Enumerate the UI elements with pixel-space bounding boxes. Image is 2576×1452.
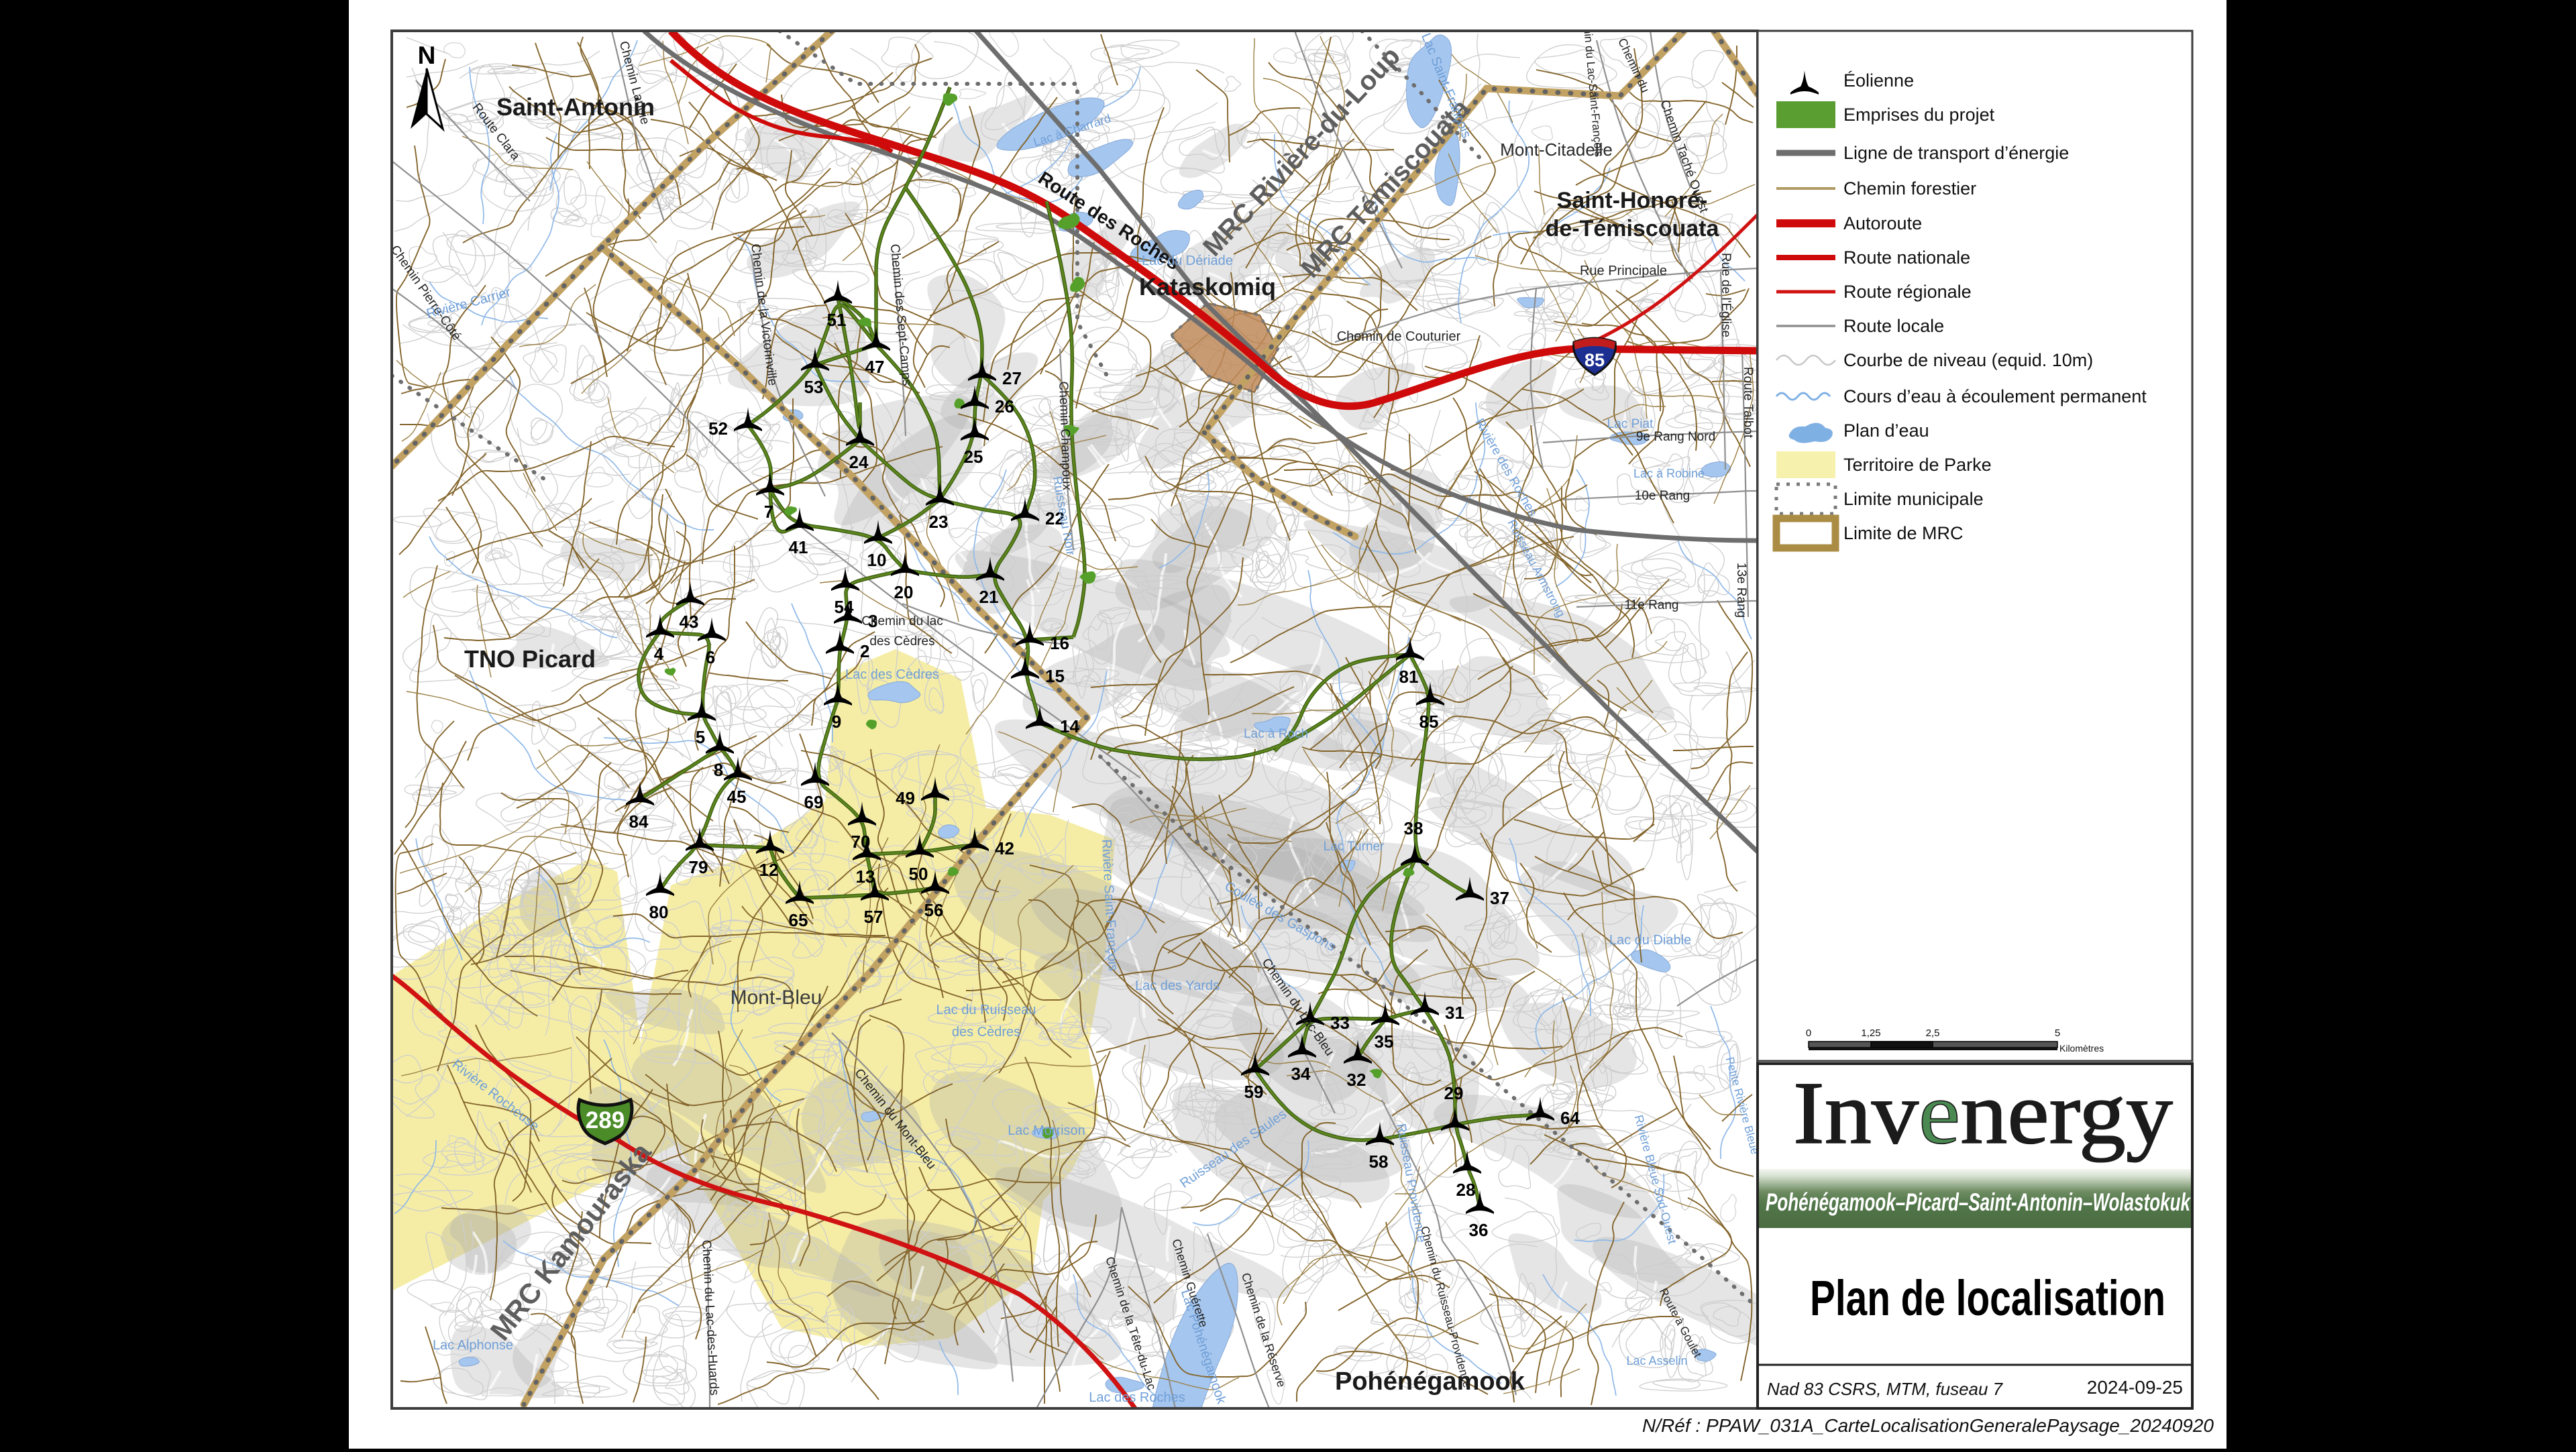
svg-text:33: 33 xyxy=(1330,1013,1350,1033)
svg-text:23: 23 xyxy=(929,512,949,532)
svg-text:Éolienne: Éolienne xyxy=(1843,70,1914,91)
svg-text:Lac du Ruisseau: Lac du Ruisseau xyxy=(936,1003,1036,1017)
svg-text:10e Rang: 10e Rang xyxy=(1635,489,1690,503)
svg-text:Limite de MRC: Limite de MRC xyxy=(1843,523,1964,543)
svg-text:65: 65 xyxy=(789,910,808,930)
svg-text:Kilomètres: Kilomètres xyxy=(2059,1043,2104,1054)
svg-text:50: 50 xyxy=(909,864,928,884)
svg-text:Kataskomiq: Kataskomiq xyxy=(1139,273,1276,300)
svg-text:Route nationale: Route nationale xyxy=(1843,247,1970,268)
svg-text:49: 49 xyxy=(896,788,915,808)
svg-text:Lac à Robine: Lac à Robine xyxy=(1633,467,1705,480)
svg-text:34: 34 xyxy=(1291,1064,1311,1084)
svg-text:Mont-Bleu: Mont-Bleu xyxy=(731,987,822,1009)
svg-text:Lac des Cèdres: Lac des Cèdres xyxy=(845,667,939,682)
svg-text:7: 7 xyxy=(764,502,773,522)
svg-text:10: 10 xyxy=(867,550,887,570)
svg-text:81: 81 xyxy=(1399,667,1419,687)
svg-text:2,5: 2,5 xyxy=(1926,1027,1940,1039)
svg-text:Lac du Dériade: Lac du Dériade xyxy=(1142,254,1233,268)
svg-text:Lac Piat: Lac Piat xyxy=(1607,417,1654,431)
svg-text:16: 16 xyxy=(1050,633,1069,653)
svg-text:Ligne de transport d’énergie: Ligne de transport d’énergie xyxy=(1843,143,2069,163)
svg-text:4: 4 xyxy=(654,644,664,664)
svg-text:21: 21 xyxy=(979,587,999,607)
svg-text:9: 9 xyxy=(832,712,841,732)
svg-text:24: 24 xyxy=(849,452,869,472)
svg-text:Chemin du lac: Chemin du lac xyxy=(861,614,943,628)
svg-text:85: 85 xyxy=(1585,350,1605,370)
svg-text:Courbe de niveau (equid. 10m): Courbe de niveau (equid. 10m) xyxy=(1843,350,2093,370)
svg-text:des Cèdres: des Cèdres xyxy=(869,634,934,649)
svg-text:80: 80 xyxy=(649,902,669,922)
svg-text:58: 58 xyxy=(1369,1152,1389,1172)
svg-text:56: 56 xyxy=(924,900,944,920)
svg-text:N/Réf : PPAW_031A_CarteLocali: N/Réf : PPAW_031A_CarteLocalisationGener… xyxy=(1642,1415,2214,1436)
svg-text:Chemin de Couturier: Chemin de Couturier xyxy=(1337,329,1461,344)
svg-text:26: 26 xyxy=(995,396,1014,416)
svg-text:51: 51 xyxy=(827,310,847,330)
svg-text:Nad 83 CSRS, MTM, fuseau 7: Nad 83 CSRS, MTM, fuseau 7 xyxy=(1767,1379,2004,1399)
svg-text:Lac à Roch: Lac à Roch xyxy=(1244,727,1308,741)
svg-text:14: 14 xyxy=(1060,716,1079,736)
svg-text:de-Témiscouata: de-Témiscouata xyxy=(1546,216,1720,241)
svg-text:25: 25 xyxy=(964,447,983,467)
svg-text:Pohénégamook: Pohénégamook xyxy=(1335,1367,1525,1396)
svg-text:38: 38 xyxy=(1404,818,1424,838)
svg-text:Plan d’eau: Plan d’eau xyxy=(1843,421,1929,441)
svg-text:Plan de localisation: Plan de localisation xyxy=(1810,1270,2165,1326)
svg-text:2024-09-25: 2024-09-25 xyxy=(2087,1377,2183,1398)
svg-text:84: 84 xyxy=(629,812,649,832)
svg-text:15: 15 xyxy=(1045,666,1065,686)
svg-text:Lac Asselin: Lac Asselin xyxy=(1626,1354,1687,1367)
svg-text:Lac des Yards: Lac des Yards xyxy=(1135,979,1220,993)
svg-text:Route régionale: Route régionale xyxy=(1843,282,1972,302)
svg-text:289: 289 xyxy=(586,1107,625,1133)
svg-text:N: N xyxy=(418,42,436,69)
svg-text:69: 69 xyxy=(804,792,824,812)
svg-text:5: 5 xyxy=(696,727,705,747)
svg-text:Chemin forestier: Chemin forestier xyxy=(1843,178,1976,199)
svg-text:9e Rang Nord: 9e Rang Nord xyxy=(1636,430,1715,444)
svg-text:64: 64 xyxy=(1560,1108,1580,1128)
svg-text:Limite municipale: Limite municipale xyxy=(1843,489,1984,509)
svg-text:53: 53 xyxy=(804,377,824,397)
svg-text:11e Rang: 11e Rang xyxy=(1625,598,1679,612)
svg-text:42: 42 xyxy=(995,838,1014,858)
svg-text:28: 28 xyxy=(1456,1180,1476,1200)
svg-text:47: 47 xyxy=(865,357,885,377)
svg-text:35: 35 xyxy=(1375,1031,1394,1052)
svg-text:13e Rang: 13e Rang xyxy=(1734,563,1748,618)
svg-text:Autoroute: Autoroute xyxy=(1843,213,1922,233)
svg-text:45: 45 xyxy=(727,787,747,807)
svg-text:5: 5 xyxy=(2055,1027,2060,1039)
svg-text:20: 20 xyxy=(894,582,914,602)
svg-text:Territoire de Parke: Territoire de Parke xyxy=(1843,455,1992,475)
svg-text:31: 31 xyxy=(1445,1003,1464,1023)
svg-text:52: 52 xyxy=(708,418,728,439)
svg-text:Route locale: Route locale xyxy=(1843,316,1944,336)
svg-text:Lac des Roches: Lac des Roches xyxy=(1089,1390,1185,1405)
svg-text:27: 27 xyxy=(1002,368,1022,388)
svg-text:32: 32 xyxy=(1347,1070,1366,1090)
svg-text:6: 6 xyxy=(706,647,715,667)
svg-text:Lac Morrison: Lac Morrison xyxy=(1008,1123,1085,1138)
svg-text:36: 36 xyxy=(1469,1220,1489,1240)
svg-text:43: 43 xyxy=(680,612,699,632)
svg-text:Emprises du projet: Emprises du projet xyxy=(1843,105,1995,125)
svg-text:13: 13 xyxy=(856,867,875,887)
svg-text:Pohénégamook–Picard–Saint-Anto: Pohénégamook–Picard–Saint-Antonin–Wolast… xyxy=(1766,1188,2192,1216)
svg-text:8: 8 xyxy=(714,760,723,780)
svg-text:2: 2 xyxy=(860,641,869,661)
svg-text:0: 0 xyxy=(1806,1027,1811,1039)
svg-text:Lac du Diable: Lac du Diable xyxy=(1609,933,1691,948)
svg-text:59: 59 xyxy=(1244,1082,1264,1102)
svg-text:12: 12 xyxy=(759,860,779,880)
svg-text:TNO Picard: TNO Picard xyxy=(464,645,596,673)
svg-text:des Cèdres: des Cèdres xyxy=(952,1025,1020,1040)
svg-text:1,25: 1,25 xyxy=(1861,1027,1880,1039)
svg-text:Route Talbot: Route Talbot xyxy=(1741,367,1755,439)
svg-text:57: 57 xyxy=(864,907,883,927)
svg-text:29: 29 xyxy=(1444,1083,1464,1103)
svg-text:Lac Turner: Lac Turner xyxy=(1324,840,1385,854)
svg-text:37: 37 xyxy=(1490,888,1509,908)
svg-text:79: 79 xyxy=(689,857,708,877)
svg-text:Saint-Honoré-: Saint-Honoré- xyxy=(1557,188,1708,213)
svg-text:Lac Alphonse: Lac Alphonse xyxy=(433,1338,513,1353)
svg-text:Invenergy: Invenergy xyxy=(1793,1063,2173,1162)
svg-text:85: 85 xyxy=(1419,712,1439,732)
svg-text:Cours d’eau à écoulement perma: Cours d’eau à écoulement permanent xyxy=(1843,386,2147,406)
svg-text:Rue de l'Église: Rue de l'Église xyxy=(1719,253,1733,337)
svg-text:Rue Principale: Rue Principale xyxy=(1580,264,1667,278)
svg-text:41: 41 xyxy=(789,537,808,557)
